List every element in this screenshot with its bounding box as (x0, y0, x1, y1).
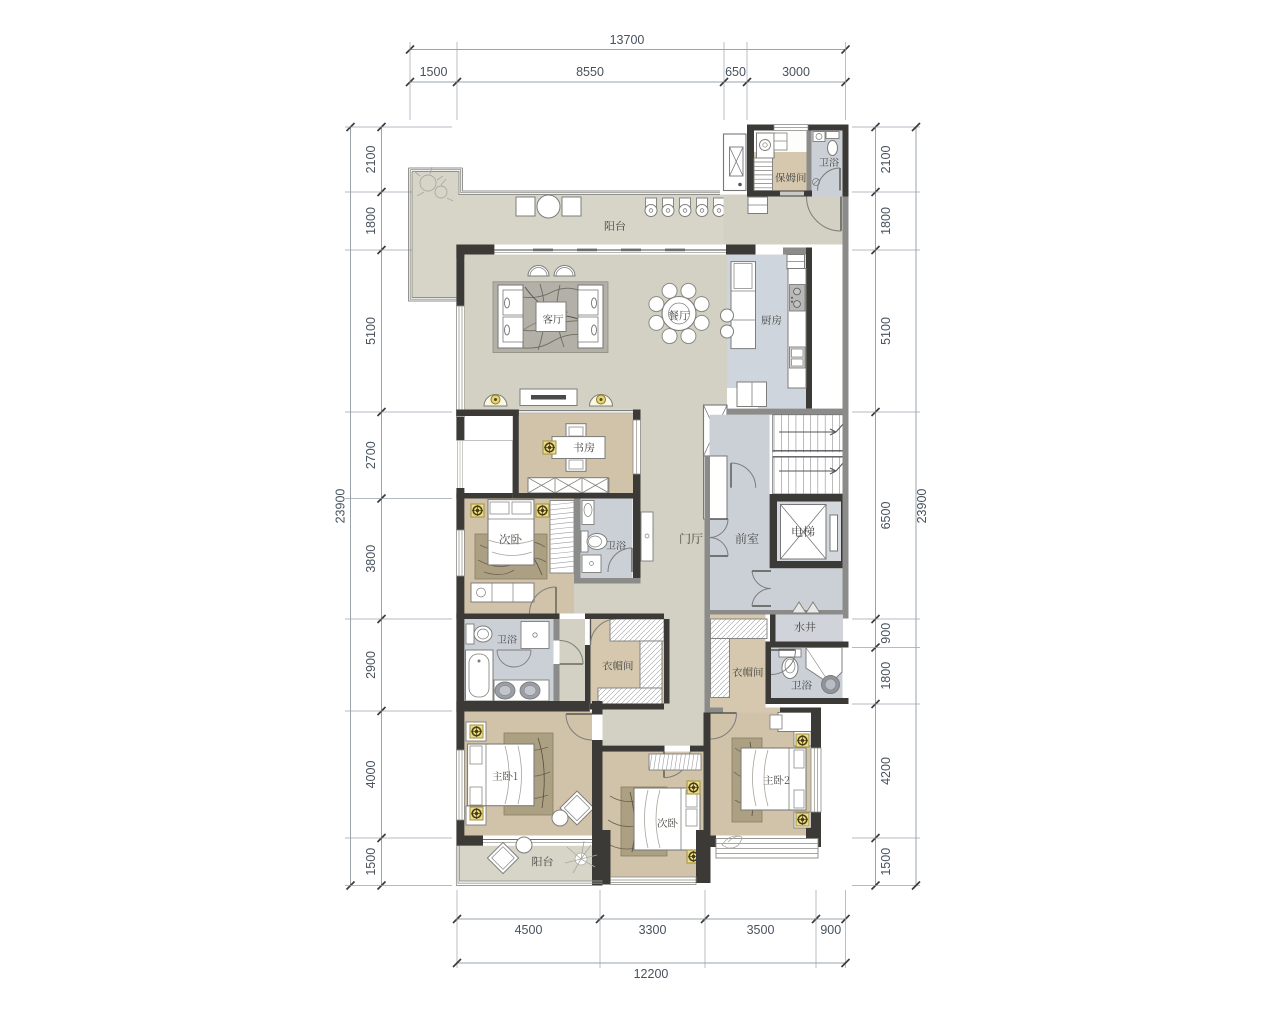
svg-text:1800: 1800 (879, 207, 893, 235)
svg-text:4000: 4000 (364, 761, 378, 789)
svg-text:12200: 12200 (634, 967, 669, 981)
svg-text:1500: 1500 (364, 848, 378, 876)
svg-text:1500: 1500 (420, 65, 448, 79)
svg-text:1800: 1800 (364, 207, 378, 235)
svg-text:3800: 3800 (364, 545, 378, 573)
svg-text:4500: 4500 (515, 923, 543, 937)
svg-text:8550: 8550 (576, 65, 604, 79)
svg-text:2900: 2900 (364, 651, 378, 679)
svg-text:5100: 5100 (364, 317, 378, 345)
svg-text:23900: 23900 (915, 489, 929, 524)
svg-text:4200: 4200 (879, 757, 893, 785)
svg-text:1500: 1500 (879, 848, 893, 876)
svg-text:3500: 3500 (747, 923, 775, 937)
svg-text:650: 650 (725, 65, 746, 79)
svg-text:13700: 13700 (610, 33, 645, 47)
svg-text:2100: 2100 (879, 146, 893, 174)
svg-text:23900: 23900 (334, 489, 348, 524)
svg-text:900: 900 (879, 623, 893, 644)
svg-text:3000: 3000 (782, 65, 810, 79)
svg-text:2700: 2700 (364, 441, 378, 469)
svg-text:1800: 1800 (879, 662, 893, 690)
svg-text:5100: 5100 (879, 317, 893, 345)
svg-text:3300: 3300 (639, 923, 667, 937)
svg-text:2100: 2100 (364, 146, 378, 174)
svg-text:6500: 6500 (879, 502, 893, 530)
svg-text:900: 900 (820, 923, 841, 937)
